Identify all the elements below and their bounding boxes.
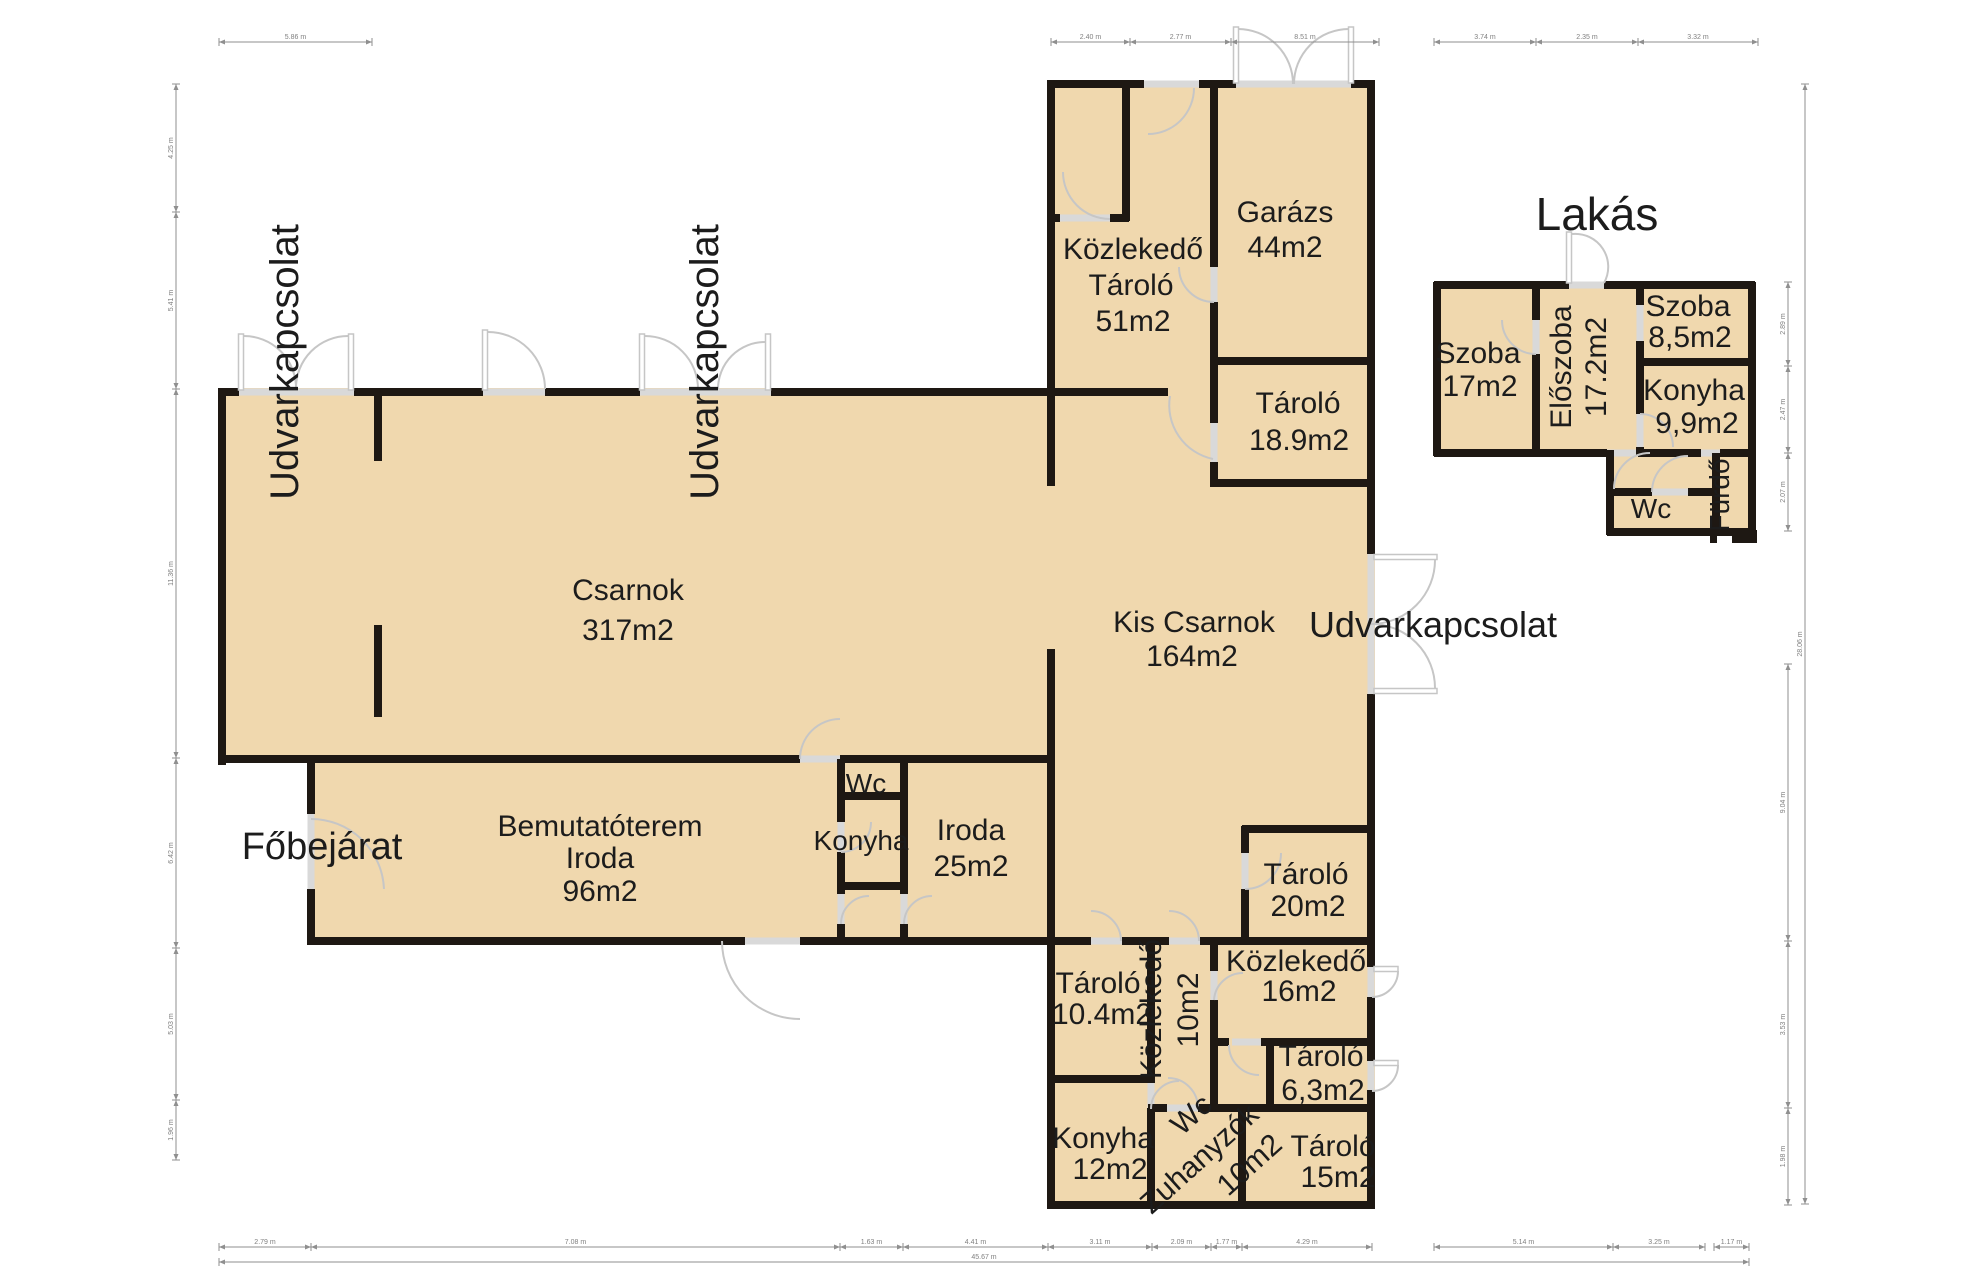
svg-text:Udvarkapcsolat: Udvarkapcsolat: [683, 224, 727, 500]
svg-text:Garázs: Garázs: [1237, 196, 1334, 229]
svg-text:45.67 m: 45.67 m: [971, 1254, 996, 1261]
svg-text:9,9m2: 9,9m2: [1655, 407, 1738, 440]
svg-text:3.11 m: 3.11 m: [1090, 1239, 1111, 1246]
svg-text:2.47 m: 2.47 m: [1780, 399, 1787, 421]
svg-text:Előszoba: Előszoba: [1545, 305, 1578, 429]
svg-text:25m2: 25m2: [933, 850, 1008, 883]
svg-text:10m2: 10m2: [1172, 972, 1205, 1047]
svg-text:1.77 m: 1.77 m: [1216, 1239, 1238, 1246]
svg-text:Közlekedő: Közlekedő: [1063, 233, 1203, 266]
svg-text:1.17 m: 1.17 m: [1721, 1239, 1743, 1246]
svg-text:2.35 m: 2.35 m: [1576, 34, 1598, 41]
svg-text:Udvarkapcsolat: Udvarkapcsolat: [263, 224, 307, 500]
svg-text:2.40 m: 2.40 m: [1080, 34, 1102, 41]
svg-text:Szoba: Szoba: [1435, 337, 1520, 370]
svg-text:6.42 m: 6.42 m: [168, 842, 175, 864]
svg-text:18.9m2: 18.9m2: [1249, 424, 1349, 457]
svg-text:5.03 m: 5.03 m: [168, 1013, 175, 1035]
svg-text:Iroda: Iroda: [937, 814, 1006, 847]
svg-text:1.63 m: 1.63 m: [861, 1239, 883, 1246]
svg-text:3.32 m: 3.32 m: [1687, 34, 1709, 41]
svg-text:15m2: 15m2: [1300, 1161, 1375, 1194]
svg-text:1.98 m: 1.98 m: [1780, 1146, 1787, 1168]
svg-text:2.09 m: 2.09 m: [1171, 1239, 1193, 1246]
svg-text:5.41 m: 5.41 m: [168, 290, 175, 312]
svg-text:Konyha: Konyha: [1052, 1122, 1154, 1155]
svg-text:Lakás: Lakás: [1536, 188, 1659, 240]
svg-text:6,3m2: 6,3m2: [1281, 1074, 1364, 1107]
svg-text:7.08 m: 7.08 m: [565, 1239, 587, 1246]
svg-text:Konyha: Konyha: [1643, 374, 1745, 407]
svg-text:Tároló: Tároló: [1278, 1040, 1363, 1073]
svg-text:2.07 m: 2.07 m: [1780, 481, 1787, 503]
svg-text:28.06 m: 28.06 m: [1797, 631, 1804, 656]
svg-text:Csarnok: Csarnok: [572, 574, 685, 607]
svg-text:8.51 m: 8.51 m: [1294, 34, 1316, 41]
svg-text:11.36 m: 11.36 m: [168, 561, 175, 586]
svg-text:Wc: Wc: [846, 768, 886, 799]
svg-text:2.79 m: 2.79 m: [254, 1239, 276, 1246]
svg-text:17m2: 17m2: [1442, 370, 1517, 403]
svg-text:2.77 m: 2.77 m: [1170, 34, 1192, 41]
svg-text:17.2m2: 17.2m2: [1580, 317, 1613, 417]
svg-text:12m2: 12m2: [1072, 1153, 1147, 1186]
svg-text:9.04 m: 9.04 m: [1780, 792, 1787, 814]
svg-text:Konyha: Konyha: [814, 825, 909, 856]
svg-text:Iroda: Iroda: [566, 842, 635, 875]
svg-text:3.74 m: 3.74 m: [1474, 34, 1496, 41]
svg-text:Tároló: Tároló: [1255, 387, 1340, 420]
svg-text:Bemutatóterem: Bemutatóterem: [497, 810, 702, 843]
svg-text:1.96 m: 1.96 m: [168, 1119, 175, 1141]
svg-text:96m2: 96m2: [562, 875, 637, 908]
svg-text:4.25 m: 4.25 m: [168, 137, 175, 159]
svg-text:Udvarkapcsolat: Udvarkapcsolat: [1309, 604, 1557, 645]
svg-text:4.29 m: 4.29 m: [1296, 1239, 1318, 1246]
svg-text:Tároló: Tároló: [1055, 967, 1140, 1000]
svg-text:Kis Csarnok: Kis Csarnok: [1113, 606, 1276, 639]
svg-text:4.41 m: 4.41 m: [965, 1239, 987, 1246]
svg-text:16m2: 16m2: [1261, 975, 1336, 1008]
svg-text:Fürdő: Fürdő: [1704, 458, 1735, 531]
svg-text:51m2: 51m2: [1095, 305, 1170, 338]
svg-text:3.53 m: 3.53 m: [1780, 1014, 1787, 1036]
svg-text:Szoba: Szoba: [1645, 290, 1730, 323]
svg-text:Tároló: Tároló: [1263, 858, 1348, 891]
svg-text:Közlekedő: Közlekedő: [1226, 945, 1366, 978]
svg-text:44m2: 44m2: [1247, 231, 1322, 264]
svg-text:317m2: 317m2: [582, 614, 674, 647]
svg-text:Közlekedő: Közlekedő: [1135, 939, 1168, 1079]
svg-text:Tároló: Tároló: [1088, 269, 1173, 302]
svg-text:164m2: 164m2: [1146, 640, 1238, 673]
svg-text:20m2: 20m2: [1270, 890, 1345, 923]
svg-text:5.14 m: 5.14 m: [1513, 1239, 1535, 1246]
svg-text:8,5m2: 8,5m2: [1648, 321, 1731, 354]
svg-text:3.25 m: 3.25 m: [1648, 1239, 1670, 1246]
svg-text:Wc: Wc: [1631, 493, 1671, 524]
svg-text:2.89 m: 2.89 m: [1780, 313, 1787, 335]
svg-text:Tároló: Tároló: [1290, 1130, 1375, 1163]
svg-text:5.86 m: 5.86 m: [285, 34, 307, 41]
svg-text:Főbejárat: Főbejárat: [242, 826, 403, 868]
